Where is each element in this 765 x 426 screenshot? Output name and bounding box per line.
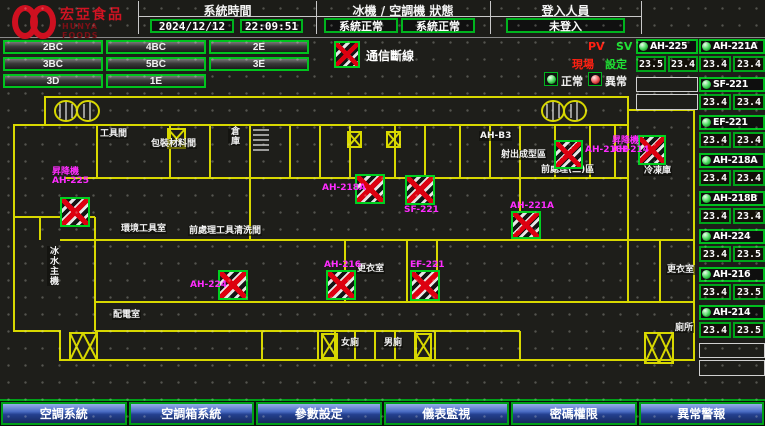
pv-value: 23.4 xyxy=(699,284,731,300)
system-time-label: 系統時間 xyxy=(139,2,316,19)
room-label: 射出成型區 xyxy=(500,150,547,160)
unit-values: 23.4 23.4 xyxy=(699,132,765,148)
room-label: 包裝材料間 xyxy=(150,139,197,149)
abnormal-label: 異常 xyxy=(605,73,627,89)
unit-button-ah-214[interactable]: AH-214 xyxy=(699,305,765,320)
unit-block: AH-218B 23.4 23.4 xyxy=(699,191,765,224)
room-label: 工具間 xyxy=(99,129,128,139)
floor-button-2e[interactable]: 2E xyxy=(209,40,309,54)
room-label: 更衣室 xyxy=(666,265,695,275)
unit-values: 23.4 23.4 xyxy=(699,170,765,186)
nav-button-2[interactable]: 參數設定 xyxy=(256,402,382,425)
pv-value: 23.4 xyxy=(699,56,731,72)
device-label-ah-221a: AH-221A xyxy=(510,202,554,211)
status-lamp-icon xyxy=(702,232,711,241)
status-lamp-icon xyxy=(702,80,711,89)
sv-value: 23.4 xyxy=(733,132,765,148)
unit-values: 23.4 23.4 xyxy=(699,94,765,110)
unit-slot-empty xyxy=(699,343,765,376)
unit-button-ah-221a[interactable]: AH-221A xyxy=(699,39,765,54)
status-lamp-icon xyxy=(702,308,711,317)
room-label: 男廁 xyxy=(383,338,403,348)
floor-button-2bc[interactable]: 2BC xyxy=(3,40,103,54)
unit-button-ah-224[interactable]: AH-224 xyxy=(699,229,765,244)
status-lamp-icon xyxy=(702,118,711,127)
logo-crescent-icon xyxy=(30,5,56,39)
unit-button-ah-218a[interactable]: AH-218A xyxy=(699,153,765,168)
unit-values: 23.4 23.5 xyxy=(699,284,765,300)
pv-value: 23.4 xyxy=(699,132,731,148)
abnormal-lamp-icon xyxy=(588,72,602,86)
unit-block: SF-221 23.4 23.4 xyxy=(699,77,765,110)
device-marker-ef-221[interactable] xyxy=(410,270,440,301)
sv-sub-label: 設定 xyxy=(605,56,627,72)
unit-values: 23.5 23.4 xyxy=(636,56,698,72)
device-marker-ah-225[interactable] xyxy=(60,197,90,227)
status-lamp-icon xyxy=(702,270,711,279)
machine-status-label: 冰機 / 空調機 狀態 xyxy=(316,2,490,19)
unit-button-ah-225[interactable]: AH-225 xyxy=(636,39,698,54)
device-label-ef-221: EF-221 xyxy=(410,261,445,270)
system-time-value: 22:09:51 xyxy=(240,19,303,33)
unit-name: AH-221A xyxy=(713,41,757,52)
room-label: 冰水主機 xyxy=(47,246,59,286)
room-label: 倉庫 xyxy=(228,126,240,146)
unit-column-left: AH-225 23.5 23.4 xyxy=(636,39,698,115)
device-marker-ah-221a[interactable] xyxy=(511,211,541,239)
device-label-sf-221: SF-221 xyxy=(404,206,439,215)
pv-value: 23.5 xyxy=(636,56,666,72)
normal-lamp-icon xyxy=(544,72,558,86)
device-marker-ah-216[interactable] xyxy=(326,270,356,300)
sv-value: 23.5 xyxy=(733,284,765,300)
pv-sub-label: 現場 xyxy=(572,56,594,72)
status-lamp-icon xyxy=(639,42,648,51)
unit-button-ah-218b[interactable]: AH-218B xyxy=(699,191,765,206)
logo-title: 宏亞食品 xyxy=(60,4,124,24)
floor-button-3e[interactable]: 3E xyxy=(209,57,309,71)
device-label-ah-225: 昇降機AH-225 xyxy=(52,168,89,186)
room-label: AH-B3 xyxy=(479,131,512,141)
room-label: 廁所 xyxy=(674,323,694,333)
sv-value: 23.4 xyxy=(668,56,698,72)
unit-values: 23.4 23.5 xyxy=(699,246,765,262)
floor-button-3bc[interactable]: 3BC xyxy=(3,57,103,71)
device-label-ah-216: AH-216 xyxy=(324,261,361,270)
comm-loss-label: 通信斷線 xyxy=(366,47,414,64)
device-label-ah-218a: AH-218A xyxy=(322,184,366,193)
unit-name: AH-214 xyxy=(713,307,750,318)
status-lamp-icon xyxy=(702,156,711,165)
system-date-value: 2024/12/12 xyxy=(150,19,234,33)
sv-header: SV xyxy=(616,40,632,53)
status-lamp-icon xyxy=(702,194,711,203)
logo-subtitle: HUNYA FOODS xyxy=(62,22,136,40)
ahu-status-box: 系統正常 xyxy=(401,18,475,33)
device-marker-sf-221[interactable] xyxy=(405,175,435,205)
unit-name: AH-218B xyxy=(713,193,757,204)
unit-name: SF-221 xyxy=(713,79,748,90)
chiller-status-box: 系統正常 xyxy=(324,18,398,33)
unit-values: 23.4 23.4 xyxy=(699,56,765,72)
sv-value: 23.5 xyxy=(733,322,765,338)
nav-button-1[interactable]: 空調箱系統 xyxy=(129,402,255,425)
unit-name: EF-221 xyxy=(713,117,748,128)
room-label: 女廁 xyxy=(340,338,360,348)
unit-button-sf-221[interactable]: SF-221 xyxy=(699,77,765,92)
nav-button-4[interactable]: 密碼權限 xyxy=(511,402,637,425)
floor-button-1e[interactable]: 1E xyxy=(106,74,206,88)
hmi-screen: 宏亞食品 HUNYA FOODS 系統時間 2024/12/12 22:09:5… xyxy=(0,0,765,426)
comm-loss-icon xyxy=(334,41,360,68)
device-label-ah-214: 昇降機AH-214 xyxy=(612,137,649,155)
bottom-nav-bar: 空調系統空調箱系統參數設定儀表監視密碼權限異常警報 xyxy=(0,399,765,426)
unit-block: AH-214 23.4 23.5 xyxy=(699,305,765,338)
unit-name: AH-218A xyxy=(713,155,757,166)
device-label-ah-224: AH-224 xyxy=(190,281,227,290)
room-label: 配電室 xyxy=(112,310,141,320)
pv-value: 23.4 xyxy=(699,246,731,262)
sv-value: 23.5 xyxy=(733,246,765,262)
device-marker-ah-218b[interactable] xyxy=(554,140,583,169)
pv-value: 23.4 xyxy=(699,322,731,338)
login-status-box: 未登入 xyxy=(506,18,625,33)
sv-value: 23.4 xyxy=(733,56,765,72)
room-label: 環境工具室 xyxy=(120,224,167,234)
divider xyxy=(641,1,642,34)
room-label: 冷凍庫 xyxy=(643,166,672,176)
nav-button-0[interactable]: 空調系統 xyxy=(1,402,127,425)
sv-value: 23.4 xyxy=(733,170,765,186)
floor-selector-grid: 2BC4BC2E3BC5BC3E3D1E xyxy=(3,40,315,88)
company-logo: 宏亞食品 HUNYA FOODS xyxy=(4,2,136,35)
nav-button-5[interactable]: 異常警報 xyxy=(639,402,765,425)
unit-button-ef-221[interactable]: EF-221 xyxy=(699,115,765,130)
floor-button-5bc[interactable]: 5BC xyxy=(106,57,206,71)
unit-block: AH-224 23.4 23.5 xyxy=(699,229,765,262)
unit-column-right: AH-221A 23.4 23.4 SF-221 23.4 23.4 EF-22… xyxy=(699,39,765,381)
unit-name: AH-216 xyxy=(713,269,750,280)
room-label: 前處理工具清洗間 xyxy=(188,226,262,236)
login-user-label: 登入人員 xyxy=(490,2,641,19)
status-lamp-icon xyxy=(702,42,711,51)
pv-value: 23.4 xyxy=(699,94,731,110)
unit-block: AH-221A 23.4 23.4 xyxy=(699,39,765,72)
floor-button-3d[interactable]: 3D xyxy=(3,74,103,88)
unit-slot-empty xyxy=(636,77,698,110)
unit-values: 23.4 23.5 xyxy=(699,322,765,338)
floor-button-4bc[interactable]: 4BC xyxy=(106,40,206,54)
sv-value: 23.4 xyxy=(733,94,765,110)
pv-header: PV xyxy=(588,40,605,53)
unit-block: AH-216 23.4 23.5 xyxy=(699,267,765,300)
unit-name: AH-225 xyxy=(650,41,687,52)
normal-label: 正常 xyxy=(561,73,583,89)
unit-block: AH-225 23.5 23.4 xyxy=(636,39,698,72)
unit-block: EF-221 23.4 23.4 xyxy=(699,115,765,148)
pv-value: 23.4 xyxy=(699,208,731,224)
header-bar: 宏亞食品 HUNYA FOODS 系統時間 2024/12/12 22:09:5… xyxy=(0,0,765,38)
unit-values: 23.4 23.4 xyxy=(699,208,765,224)
pv-value: 23.4 xyxy=(699,170,731,186)
unit-block: AH-218A 23.4 23.4 xyxy=(699,153,765,186)
sv-value: 23.4 xyxy=(733,208,765,224)
unit-button-ah-216[interactable]: AH-216 xyxy=(699,267,765,282)
unit-name: AH-224 xyxy=(713,231,750,242)
nav-button-3[interactable]: 儀表監視 xyxy=(384,402,510,425)
